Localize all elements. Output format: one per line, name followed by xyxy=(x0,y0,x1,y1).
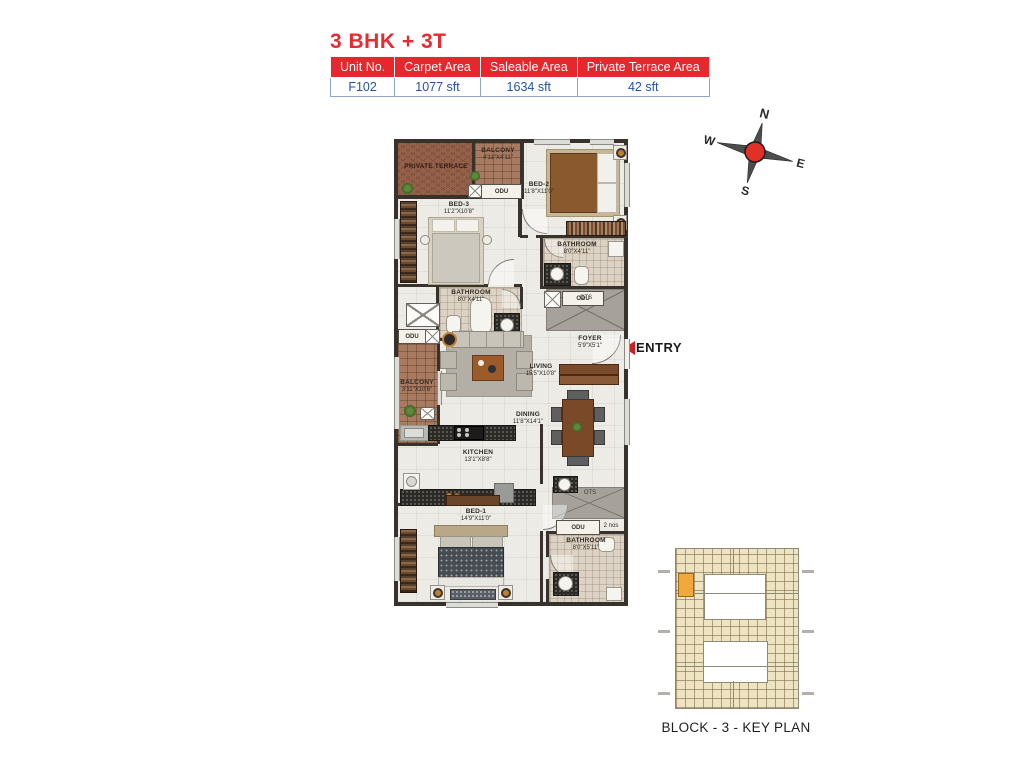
table-decor xyxy=(478,360,484,366)
label-balcony-top: BALCONY 4'11"X4'11" xyxy=(476,147,520,163)
bed2-wardrobe xyxy=(566,221,626,236)
burner xyxy=(457,433,461,437)
bed1-duvet xyxy=(438,547,504,581)
lamp-icon xyxy=(616,148,626,158)
console-unit xyxy=(559,375,619,385)
dining-chair xyxy=(594,407,605,422)
wall xyxy=(540,286,628,289)
wall xyxy=(396,443,438,446)
courtyard xyxy=(703,641,768,683)
label-bath2: BATHROOM 8'0"X4'11" xyxy=(546,241,608,257)
courtyard xyxy=(704,574,766,620)
window xyxy=(590,139,614,145)
toilet xyxy=(574,266,589,285)
lamp-icon xyxy=(433,588,443,598)
label-private-terrace: PRIVATE TERRACE xyxy=(400,163,472,171)
wash-basin xyxy=(558,478,571,491)
table-decor xyxy=(488,365,496,373)
entry-door-opening xyxy=(624,339,630,369)
floor-plan: ODU ODU ODU ODU 2 nos OTS OTS xyxy=(394,139,628,606)
compass-n: N xyxy=(758,105,771,122)
dining-chair xyxy=(551,407,562,422)
lamp-icon xyxy=(501,588,511,598)
plant-icon xyxy=(402,183,413,194)
keyplan-divider xyxy=(733,681,734,708)
keyplan-side-label xyxy=(658,692,670,695)
private-terrace-area-value: 42 sft xyxy=(577,78,709,97)
keyplan-side-label xyxy=(658,570,670,573)
armchair xyxy=(440,373,457,391)
col-unit-no: Unit No. xyxy=(331,57,395,78)
label-bed2: BED-2 11'8"X11'0" xyxy=(516,181,562,197)
tv-unit xyxy=(446,495,500,506)
compass-e: E xyxy=(795,156,806,172)
col-saleable-area: Saleable Area xyxy=(480,57,577,78)
console-unit xyxy=(559,364,619,375)
dining-chair xyxy=(594,430,605,445)
table-value-row: F102 1077 sft 1634 sft 42 sft xyxy=(331,78,710,97)
bed3-duvet xyxy=(432,233,480,283)
bed3-pillow xyxy=(456,219,479,232)
burner xyxy=(465,428,469,432)
label-foyer: FOYER 5'9"X5'1" xyxy=(564,335,616,351)
wall xyxy=(546,531,549,557)
entry-label: ENTRY xyxy=(636,340,682,355)
odu-box-bottom: ODU xyxy=(556,520,600,535)
col-carpet-area: Carpet Area xyxy=(395,57,481,78)
sofa xyxy=(452,331,524,348)
col-private-terrace-area: Private Terrace Area xyxy=(577,57,709,78)
page-title: 3 BHK + 3T xyxy=(330,30,446,54)
saleable-area-value: 1634 sft xyxy=(480,78,577,97)
table-header-row: Unit No. Carpet Area Saleable Area Priva… xyxy=(331,57,710,78)
door-arc-bed2 xyxy=(522,209,547,234)
bed1-foot-sheet xyxy=(438,577,504,587)
shower xyxy=(606,587,622,601)
keyplan-side-label xyxy=(802,692,814,695)
ots-label-top: OTS xyxy=(566,295,606,301)
lamp-icon xyxy=(420,235,430,245)
label-bath1: BATHROOM 8'0"X5'11" xyxy=(552,537,620,553)
bed3-wardrobe xyxy=(400,201,417,283)
dining-chair xyxy=(567,390,589,400)
odu-box-left: ODU xyxy=(398,329,426,344)
window xyxy=(624,399,630,445)
label-bed1: BED-1 14'9"X11'0" xyxy=(444,508,508,524)
label-kitchen: KITCHEN 13'1"X8'8" xyxy=(446,449,510,465)
wall xyxy=(540,424,543,484)
unit-info-table: Unit No. Carpet Area Saleable Area Priva… xyxy=(330,56,710,97)
bed2-pillow xyxy=(597,183,617,213)
label-bath3: BATHROOM 8'0"X4'11" xyxy=(440,289,502,305)
bed1-rug xyxy=(450,589,496,600)
compass-s: S xyxy=(740,183,751,199)
window xyxy=(446,602,498,608)
keyplan-side-label xyxy=(802,630,814,633)
wash-basin xyxy=(500,318,514,332)
keyplan-divider xyxy=(676,666,798,667)
lamp-icon xyxy=(482,235,492,245)
entry-marker: ENTRY xyxy=(624,340,682,355)
shower xyxy=(608,241,624,257)
wash-basin xyxy=(550,267,564,281)
wall xyxy=(546,579,549,605)
wash-basin xyxy=(558,576,573,591)
highlighted-unit-f102 xyxy=(678,573,694,597)
dining-chair xyxy=(551,430,562,445)
wall xyxy=(518,199,522,237)
block-key-plan xyxy=(675,548,799,709)
ac-unit-box xyxy=(420,407,435,420)
carpet-area-value: 1077 sft xyxy=(395,78,481,97)
compass-w: W xyxy=(702,132,717,148)
ac-unit-box xyxy=(468,184,482,198)
keyplan-divider xyxy=(733,549,734,574)
floor-plan-page: 3 BHK + 3T Unit No. Carpet Area Saleable… xyxy=(0,0,1024,768)
label-bed3: BED-3 11'2"X10'8" xyxy=(430,201,488,217)
label-balcony-left: BALCONY 3'11"X10'8" xyxy=(397,379,437,395)
bed1-wardrobe xyxy=(400,529,417,593)
door-arc-bed3 xyxy=(488,259,514,285)
dining-chair xyxy=(567,456,589,466)
wall xyxy=(624,139,628,606)
keyplan-side-label xyxy=(658,630,670,633)
shaft-box xyxy=(544,291,561,308)
bed3-pillow xyxy=(432,219,455,232)
wall xyxy=(540,531,543,602)
odu-qty-label: 2 nos xyxy=(599,523,623,531)
table-plant-icon xyxy=(572,422,582,432)
armchair xyxy=(440,351,457,369)
key-plan-caption: BLOCK - 3 - KEY PLAN xyxy=(650,720,822,735)
washing-machine-door xyxy=(406,476,417,487)
shaft-box xyxy=(425,329,440,344)
unit-no-value: F102 xyxy=(331,78,395,97)
burner xyxy=(465,433,469,437)
plant-icon xyxy=(470,171,480,181)
wall xyxy=(394,602,628,606)
linen-closet xyxy=(406,303,440,327)
plant-icon xyxy=(404,405,416,417)
wall xyxy=(540,238,543,288)
round-decor xyxy=(442,332,457,347)
label-living: LIVING 15'5"X10'8" xyxy=(518,363,564,379)
kitchen-sink xyxy=(404,428,424,438)
keyplan-side-label xyxy=(802,570,814,573)
window xyxy=(534,139,570,145)
window xyxy=(624,163,630,207)
keyplan-divider xyxy=(676,593,798,594)
burner xyxy=(457,428,461,432)
compass-rose-icon: N E W S xyxy=(698,100,813,205)
label-dining: DINING 11'8"X14'1" xyxy=(506,411,550,427)
